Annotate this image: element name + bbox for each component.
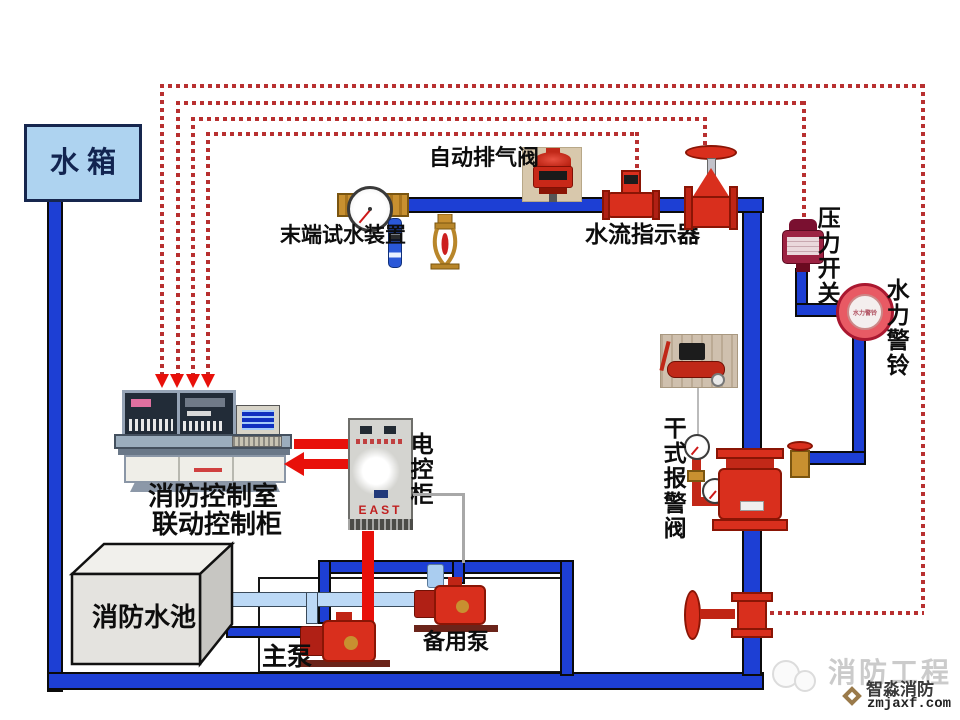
signal-line [635, 132, 639, 170]
pressure-switch-neck [796, 263, 810, 272]
cabinet-text-row [356, 439, 404, 444]
crt-monitor [236, 405, 280, 435]
trim-valve [687, 470, 705, 482]
air-vent-label-band [539, 171, 567, 180]
signal-line [703, 117, 707, 145]
bottom-main-pipe [47, 672, 764, 690]
cabinet-emblem [374, 490, 388, 498]
signal-valve-stem [700, 609, 735, 619]
signal-valve-body [737, 600, 767, 630]
signal-line [191, 117, 706, 121]
main-pump [322, 620, 376, 662]
gate-valve-body [691, 196, 731, 228]
panel-display [131, 399, 151, 407]
sprinkler-head-icon [424, 214, 466, 274]
dry-valve-top-flange [716, 448, 784, 459]
trim-valve-handwheel [787, 441, 813, 451]
flow-indicator-window [624, 175, 638, 184]
panel-bargraph [183, 421, 225, 431]
water-flow-indicator [608, 192, 654, 218]
water-tank-label: 水 箱 [50, 148, 116, 178]
pump-port [456, 600, 469, 613]
fire-protection-system-diagram: 水 箱 末端试水装置 自动排气阀 水流指示器 压力开关 [0, 0, 960, 720]
cabinet-indicator [384, 426, 396, 434]
signal-line [176, 101, 805, 105]
cabinet-base-strip [348, 519, 413, 530]
cabinet-seam [178, 457, 180, 481]
terminal-test-device-label: 末端试水装置 [280, 225, 406, 247]
alarm-bell-label: 水力警铃 [884, 278, 908, 378]
air-vent-dome [535, 152, 571, 167]
power-line-main-pump [362, 531, 374, 623]
panel-readout [187, 411, 211, 416]
auto-air-vent-label: 自动排气阀 [429, 146, 539, 169]
alarm-bell-pipe [852, 337, 866, 459]
signal-line [160, 84, 924, 88]
signal-line [206, 132, 210, 376]
control-console-panels [122, 390, 236, 438]
console-base-cabinet [124, 455, 286, 483]
base-red-marking [194, 468, 222, 472]
control-line-standby [462, 493, 465, 563]
monitor-screen [242, 410, 274, 430]
alarm-bell-dial-text: 水力警铃 [853, 308, 877, 317]
pressure-switch-label: 压力开关 [815, 206, 839, 306]
signal-valve-flange [731, 628, 773, 638]
signal-line [921, 84, 925, 612]
dry-pipe-alarm-valve [718, 468, 782, 520]
signal-arrow-icon [170, 374, 184, 388]
air-compressor-photo [660, 334, 738, 388]
electric-control-cabinet: EAST [348, 418, 413, 530]
pump-port [344, 636, 358, 650]
signal-line [206, 132, 638, 136]
alarm-bell-dial: 水力警铃 [847, 294, 883, 330]
dry-valve-label: 干式报警阀 [661, 416, 685, 541]
standby-pump-label: 备用泵 [423, 630, 489, 653]
dry-valve-nameplate [740, 501, 764, 511]
signal-bar [304, 459, 352, 469]
signal-valve-handwheel [684, 590, 701, 640]
signal-arrow-icon [201, 374, 215, 388]
water-flow-indicator-label: 水流指示器 [585, 222, 700, 246]
control-room-label-1: 消防控制室 [148, 483, 278, 510]
signal-line [191, 117, 195, 376]
signal-line [770, 611, 924, 615]
keyboard [232, 436, 282, 447]
signal-bar [294, 439, 352, 449]
signal-arrow-icon [186, 374, 200, 388]
panel-bargraph [129, 419, 173, 431]
signal-line [802, 101, 806, 218]
pressure-gauge-icon [684, 434, 710, 460]
signal-line [160, 84, 164, 376]
pool-suction-drop [306, 592, 318, 624]
gate-valve-flange [684, 186, 693, 230]
brand-site: zmjaxf.com [867, 697, 951, 712]
cabinet-seam [232, 457, 234, 481]
signal-line [176, 101, 180, 376]
trim-ball-valve [790, 450, 810, 478]
air-vent-stem [549, 194, 557, 202]
cabinet-brand: EAST [350, 504, 411, 517]
compressor-motor [679, 343, 705, 360]
panel-divider [177, 393, 180, 435]
gate-valve-bonnet [692, 168, 730, 198]
compressor-wheel [711, 373, 725, 387]
signal-arrow-left-icon [284, 452, 304, 476]
water-tank: 水 箱 [24, 124, 142, 202]
pool-suction-pipe [226, 592, 432, 607]
panel-equipment [185, 398, 225, 407]
standby-pump [434, 585, 486, 625]
control-line-standby [413, 493, 465, 496]
header-drop-pipe [560, 560, 574, 676]
signal-arrow-icon [155, 374, 169, 388]
gate-valve-flange [729, 186, 738, 230]
cabinet-indicator [360, 426, 372, 434]
pump-discharge-header [318, 560, 574, 574]
watermark-cartoon [794, 670, 816, 692]
fire-water-pool-label: 消防水池 [92, 604, 196, 631]
cabinet-glare [352, 448, 400, 494]
control-room-label-2: 联动控制柜 [152, 511, 282, 538]
brand-logo-icon [842, 686, 862, 706]
dry-valve-bottom-flange [712, 519, 788, 531]
main-pump-label: 主泵 [262, 644, 312, 670]
